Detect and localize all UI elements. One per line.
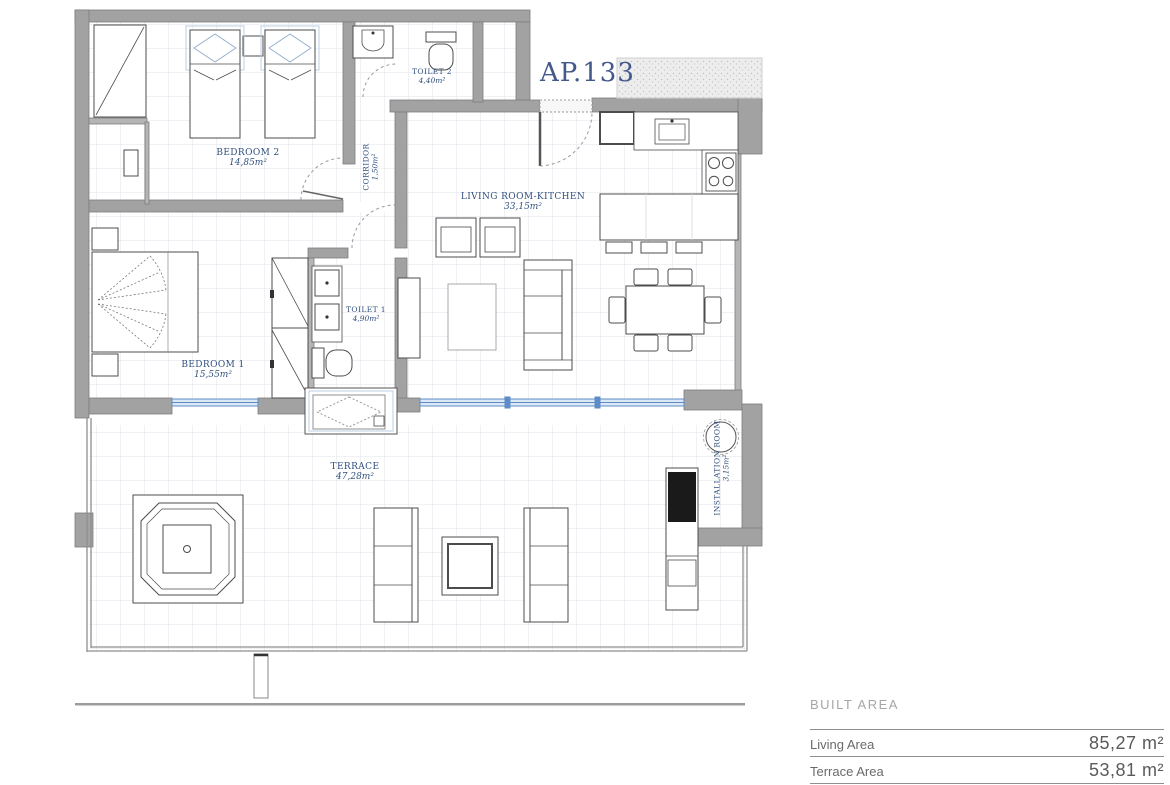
row-value: 85,27 m² — [1089, 733, 1164, 754]
row-label: Terrace Area — [810, 764, 884, 779]
pillar — [254, 654, 268, 698]
floor-plan-page: AP.133 BEDROOM 2 14,85m² TOILET 2 4,40m²… — [0, 0, 1170, 785]
built-area-table: BUILT AREA Living Area 85,27 m² Terrace … — [810, 697, 1164, 785]
row-value: 53,81 m² — [1089, 760, 1164, 781]
glazing — [172, 397, 684, 408]
neighbour-area — [617, 58, 762, 98]
section-line — [75, 703, 745, 706]
table-row: Terrace Area 53,81 m² — [810, 756, 1164, 784]
floor-plan-drawing — [0, 0, 1170, 785]
built-area-header: BUILT AREA — [810, 697, 1164, 712]
row-label: Living Area — [810, 737, 874, 752]
table-row: Living Area 85,27 m² — [810, 729, 1164, 756]
apartment-number: AP.133 — [540, 58, 635, 88]
